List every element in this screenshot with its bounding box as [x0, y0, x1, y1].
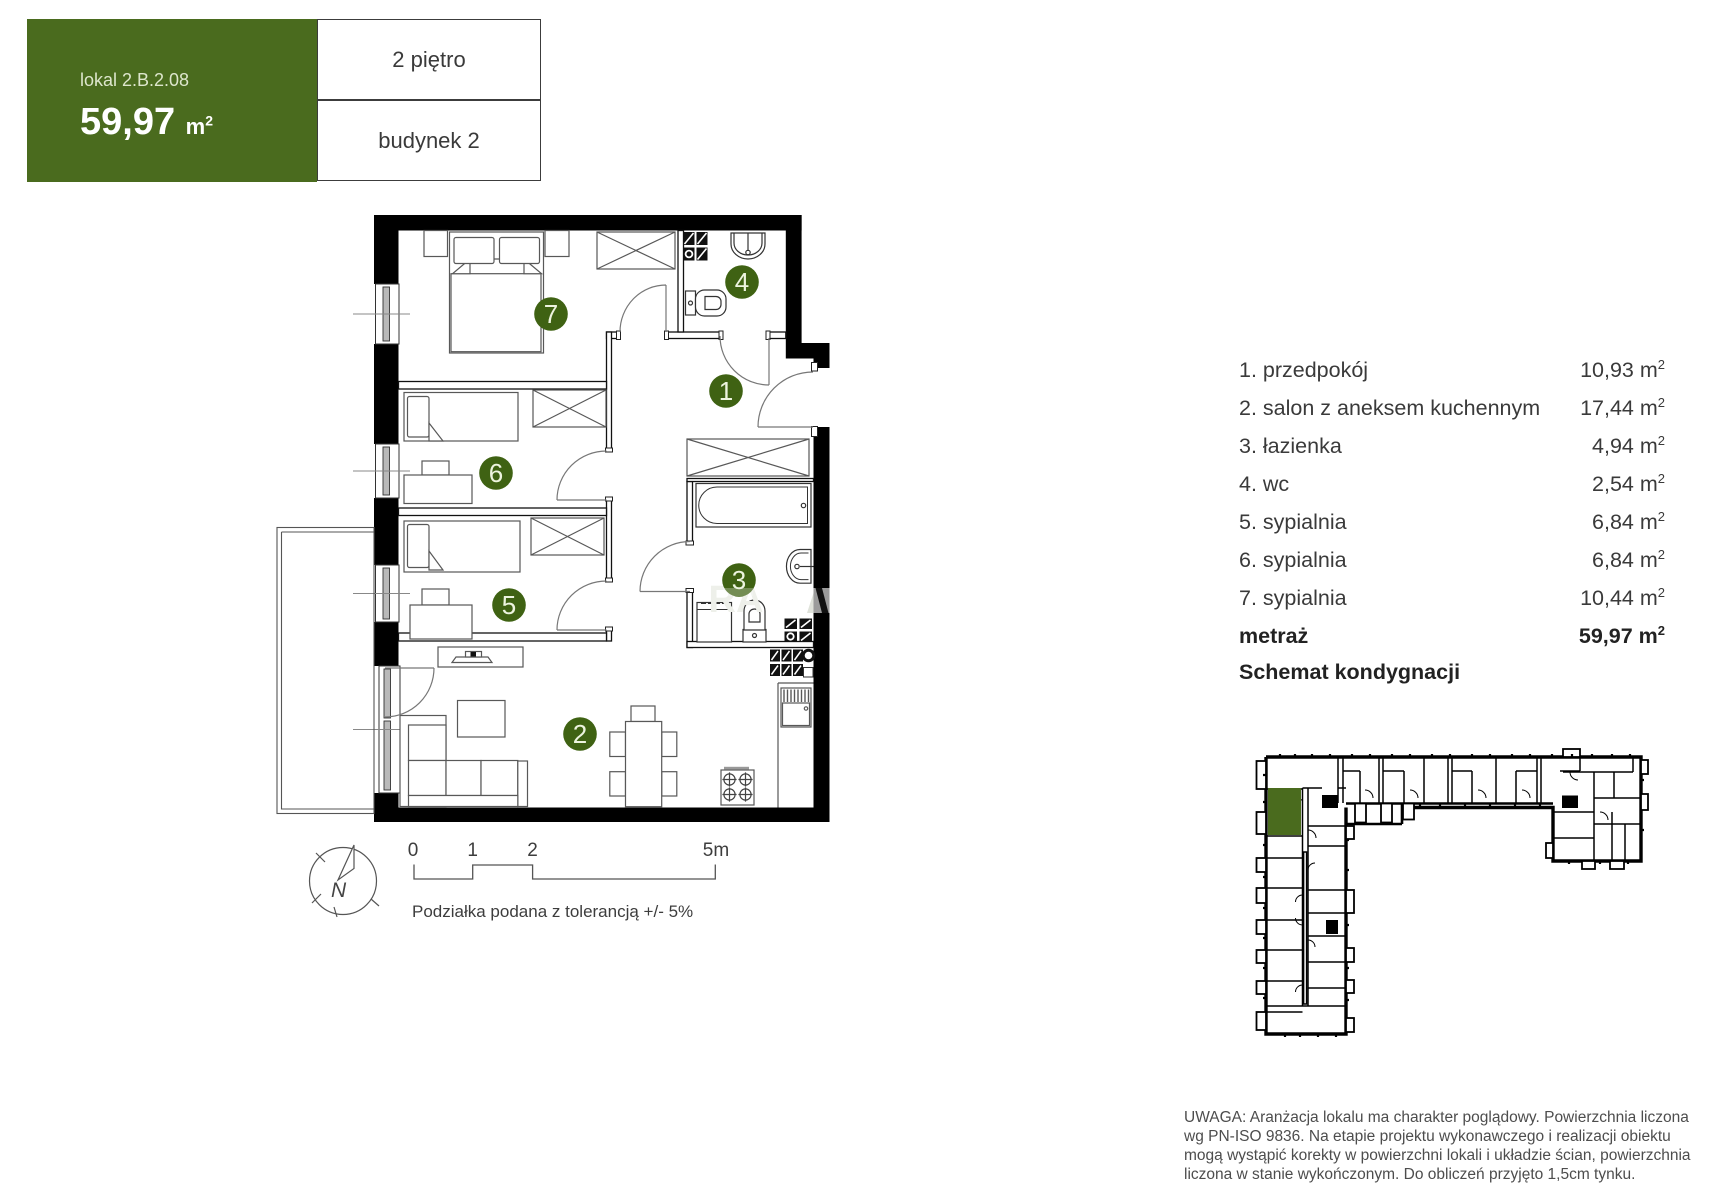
svg-text:2: 2: [573, 719, 587, 749]
svg-text:3: 3: [732, 565, 746, 595]
svg-text:2: 2: [527, 840, 538, 861]
svg-text:5m: 5m: [703, 840, 729, 861]
svg-text:6: 6: [489, 458, 503, 488]
svg-text:N: N: [331, 879, 347, 902]
svg-text:1: 1: [467, 840, 478, 861]
svg-text:Podziałka podana z tolerancją: Podziałka podana z tolerancją +/- 5%: [412, 902, 693, 921]
svg-text:0: 0: [408, 840, 419, 861]
svg-text:1: 1: [719, 376, 733, 406]
svg-text:5: 5: [502, 590, 516, 620]
svg-text:4: 4: [735, 267, 749, 297]
svg-text:7: 7: [544, 299, 558, 329]
